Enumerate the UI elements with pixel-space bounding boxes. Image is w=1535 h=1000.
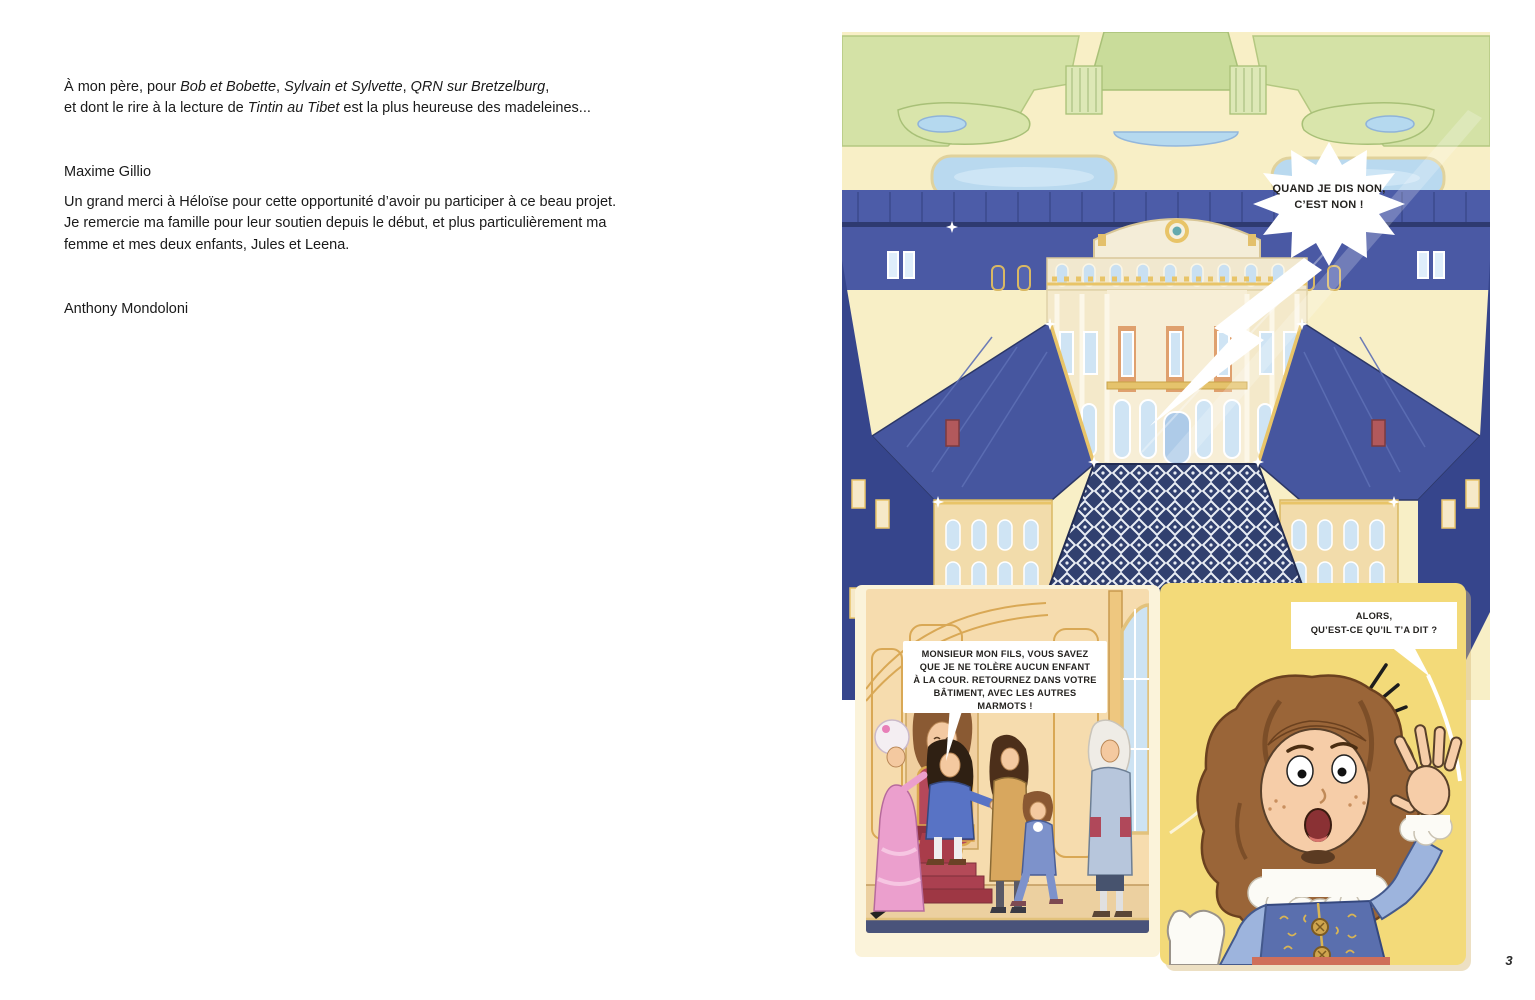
child-cuff bbox=[1400, 815, 1452, 845]
comic-page: QUAND JE DIS NON, C’EST NON ! bbox=[842, 32, 1490, 967]
speech-bubble-question: ALORS, QU’EST-CE QU’IL T’A DIT ? bbox=[1291, 602, 1457, 649]
book-spread: À mon père, pour Bob et Bobette, Sylvain… bbox=[0, 0, 1535, 1000]
acknowledgment-text: Un grand merci à Héloïse pour cette oppo… bbox=[64, 192, 616, 257]
page-number: 3 bbox=[1494, 953, 1524, 968]
glove-hand bbox=[1168, 911, 1225, 965]
acknowledgment-block: Un grand merci à Héloïse pour cette oppo… bbox=[64, 170, 616, 342]
book-title: Bob et Bobette bbox=[180, 79, 276, 95]
panel-throne-room: MONSIEUR MON FILS, VOUS SAVEZ QUE JE NE … bbox=[855, 585, 1160, 957]
panel-child-closeup: ALORS, QU’EST-CE QU’IL T’A DIT ? bbox=[1160, 583, 1466, 965]
dedication-text: À mon père, pour Bob et Bobette, Sylvain… bbox=[64, 77, 591, 120]
acknowledgment-author: Anthony Mondoloni bbox=[64, 299, 616, 321]
book-title: QRN sur Bretzelburg bbox=[411, 79, 546, 95]
book-title: Tintin au Tibet bbox=[248, 100, 340, 116]
speech-bubble-shout-text: QUAND JE DIS NON, C’EST NON ! bbox=[1254, 182, 1404, 214]
speech-bubble-king: MONSIEUR MON FILS, VOUS SAVEZ QUE JE NE … bbox=[903, 641, 1107, 713]
dedication-page: À mon père, pour Bob et Bobette, Sylvain… bbox=[64, 0, 704, 1000]
book-title: Sylvain et Sylvette bbox=[284, 79, 402, 95]
